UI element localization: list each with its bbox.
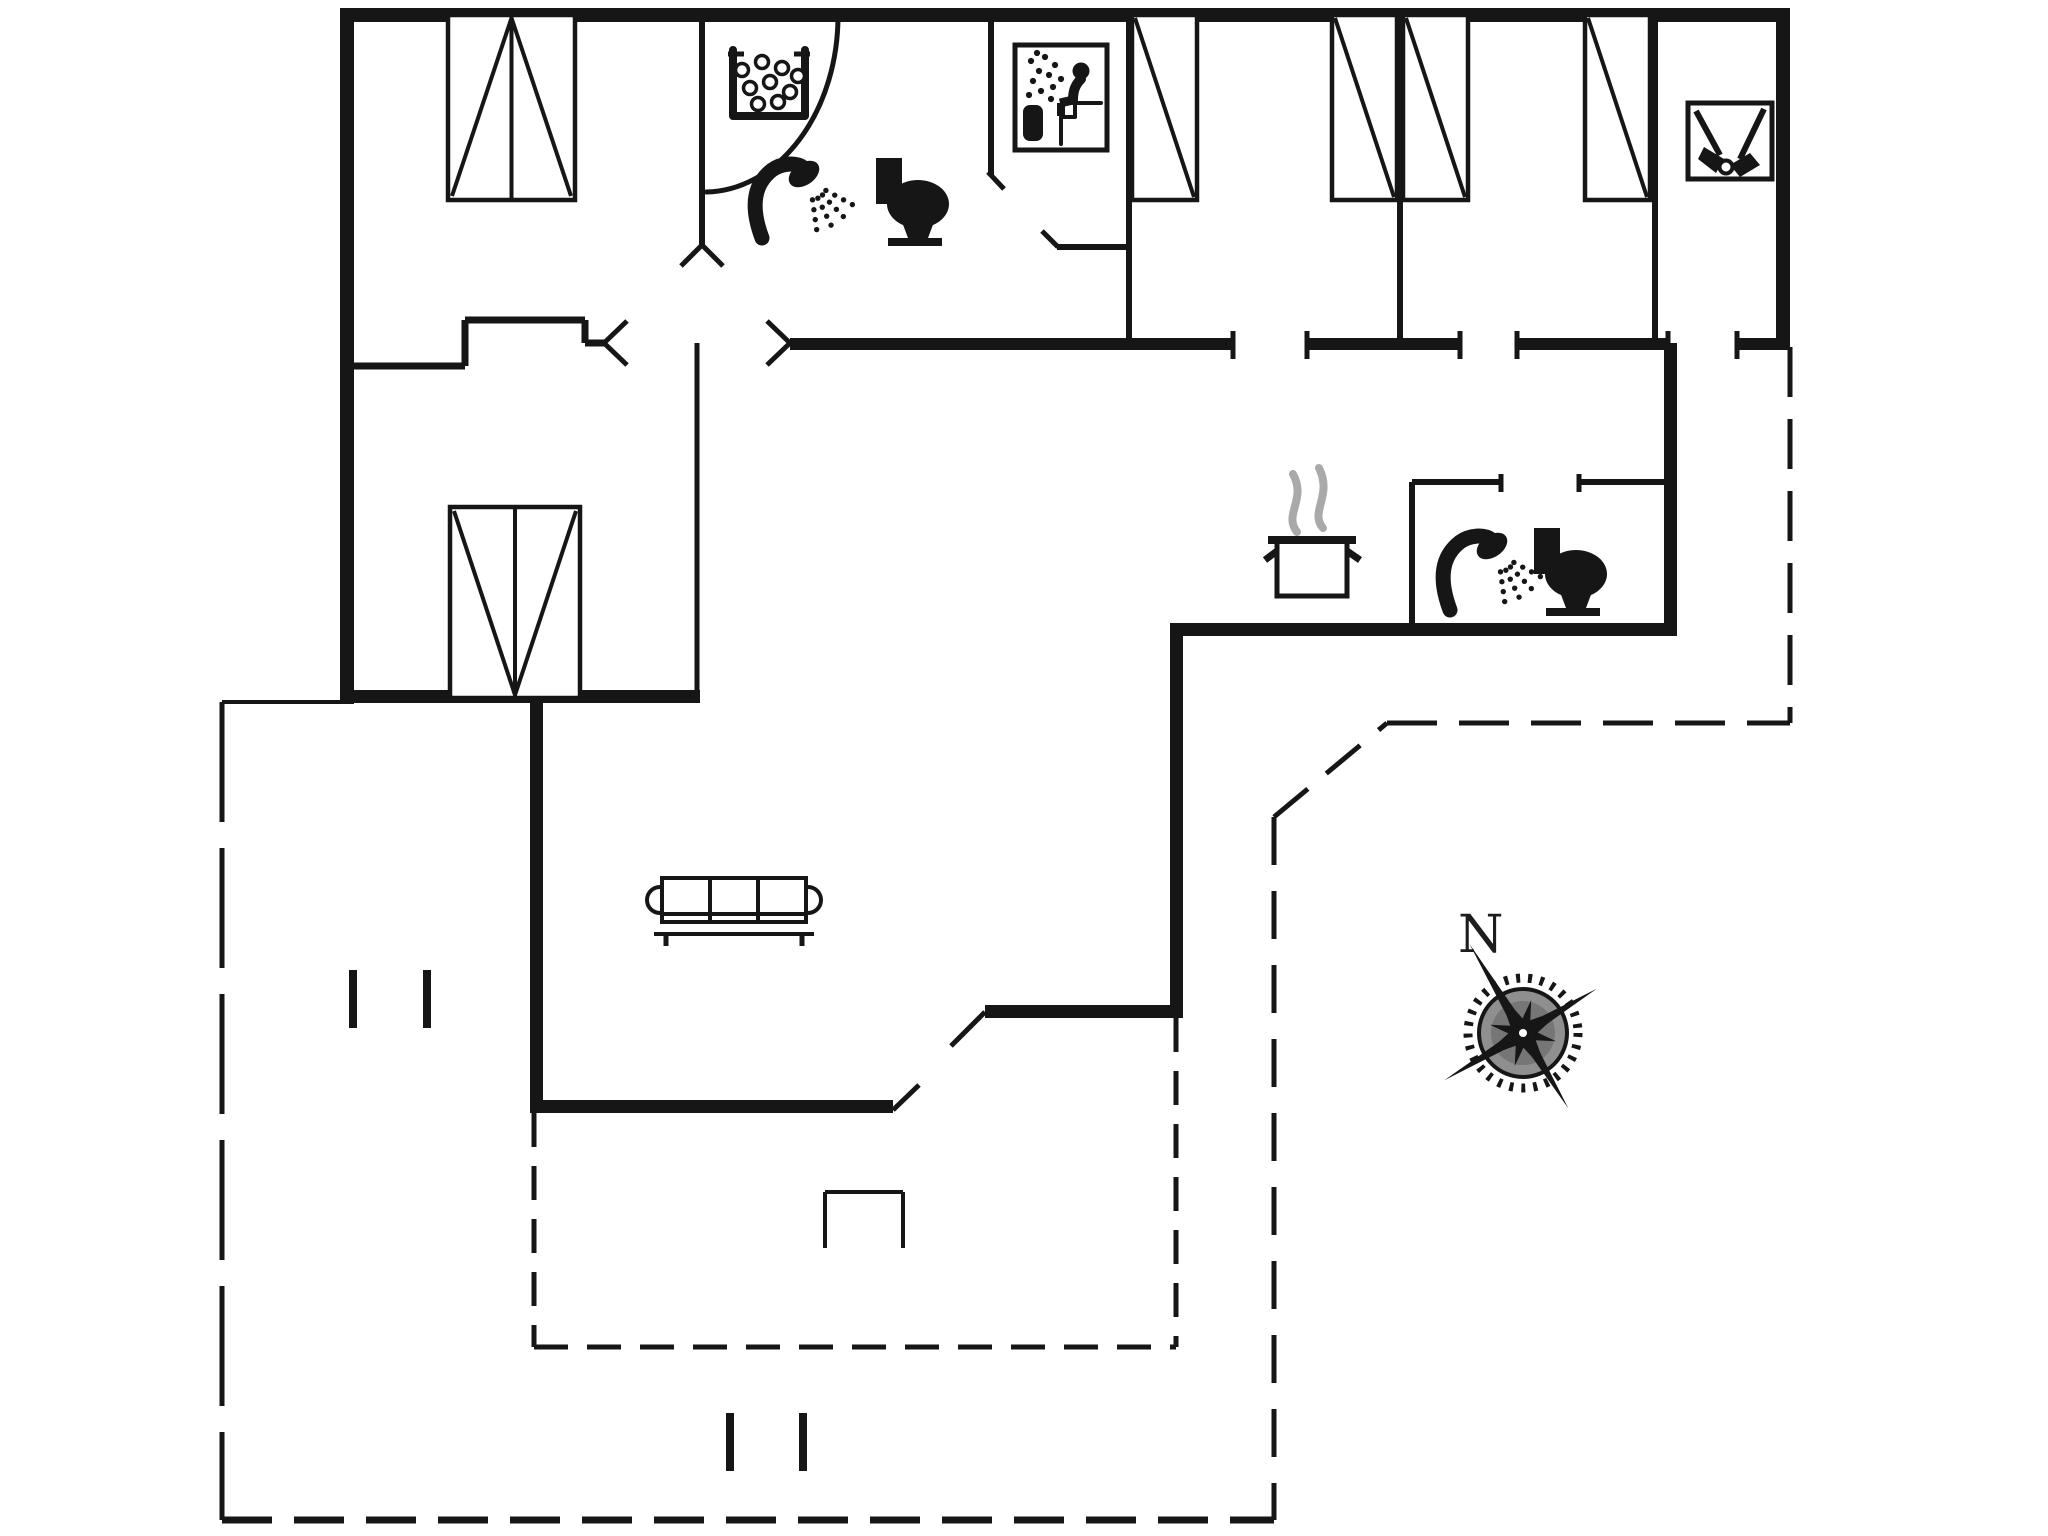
door-jamb-mark <box>767 321 790 343</box>
toilet-icon-pedestal <box>902 222 934 238</box>
shower-icon-spray-dot <box>1498 569 1503 574</box>
living-room-south-wall <box>530 1100 893 1113</box>
living-room-west-wall <box>530 701 543 1113</box>
bathroom2-east-wall <box>1664 343 1677 636</box>
sauna-icon-bucket <box>1023 105 1043 141</box>
whirlpool-bath-icon-bubble <box>792 70 805 83</box>
whirlpool-bath-icon-bubble <box>776 62 789 75</box>
terrace-door-leaf <box>951 1012 985 1046</box>
whirlpool-bath-icon-bubble <box>772 96 785 109</box>
shower-icon-spray-dot <box>1512 585 1517 590</box>
sauna-icon-steam-dot <box>1050 84 1056 90</box>
shower-icon-spray-dot <box>1529 586 1534 591</box>
shower-icon-spray-dot <box>1499 579 1504 584</box>
shower-icon-spray-dot <box>1538 574 1543 579</box>
sauna-icon-steam-dot <box>1034 50 1040 56</box>
sauna-icon-steam-dot <box>1026 92 1032 98</box>
sauna-icon-steam-dot <box>1046 72 1052 78</box>
shower-icon-spray-dot <box>1529 569 1534 574</box>
shower-icon-spray-dot <box>828 222 833 227</box>
kitchen-bathroom-south-wall <box>1170 623 1677 636</box>
sauna-icon-steam-dot <box>1052 62 1058 68</box>
door-jamb-mark <box>604 343 627 365</box>
sauna-icon-steam-dot <box>1030 78 1036 84</box>
sauna-icon-steam-dot <box>1048 96 1054 102</box>
door-jamb-mark <box>681 245 702 266</box>
shower-icon-spray-dot <box>820 192 825 197</box>
whirlpool-bath-icon-bubble <box>744 82 757 95</box>
corridor-wall-segment <box>1517 338 1668 350</box>
shower-icon-spray-dot <box>1503 567 1508 572</box>
toilet-icon-pedestal <box>1560 592 1592 608</box>
shower-icon-spray-dot <box>827 199 832 204</box>
compass-hub <box>1519 1029 1527 1037</box>
shower-icon-spray-dot <box>1501 589 1506 594</box>
shower-icon-spray-dot <box>1516 594 1521 599</box>
cooking-pot-icon-steam <box>1292 474 1297 532</box>
whirlpool-bath-icon-bubble <box>752 98 765 111</box>
whirlpool-bath-icon-bubble <box>784 86 797 99</box>
shower-icon-spray-dot <box>1502 599 1507 604</box>
shower-icon-spray-dot <box>841 214 846 219</box>
shower-icon-spray-dot <box>824 213 829 218</box>
shower-icon-spray-dot <box>815 195 820 200</box>
shower-icon-spray-dot <box>850 202 855 207</box>
cooking-pot-icon-body <box>1277 540 1347 596</box>
compass-north-label: N <box>1458 905 1504 965</box>
sauna-door-mark <box>988 172 1004 189</box>
exterior-wall-west <box>340 8 354 704</box>
shower-icon-spray-dot <box>1508 576 1513 581</box>
shower-icon-spray-dot <box>811 207 816 212</box>
cleaning-equipment-icon-vacuum-wheel <box>1720 161 1733 174</box>
door-jamb-mark <box>767 343 790 365</box>
kitchen-east-wall <box>1170 628 1183 1018</box>
shower-icon-spray-dot <box>832 192 837 197</box>
toilet-icon-bowl <box>1545 550 1607 598</box>
sauna-icon-steam-dot <box>1042 54 1048 60</box>
corridor-wall-segment <box>790 338 1233 350</box>
cooking-pot-icon-steam <box>1318 468 1323 528</box>
sauna-icon-steam-dot <box>1058 76 1064 82</box>
toilet-icon-base <box>1546 608 1600 616</box>
sauna-icon-steam-dot <box>1028 58 1034 64</box>
shower-icon-spray-dot <box>1522 579 1527 584</box>
toilet-icon-base <box>888 238 942 246</box>
corridor-wall-segment <box>1737 338 1790 350</box>
shower-icon-spray-dot <box>810 197 815 202</box>
terrace-door-jamb-mark <box>893 1085 919 1110</box>
sauna-icon-steam-dot <box>1036 68 1042 74</box>
sauna-icon-person-thigh <box>1060 100 1073 103</box>
floorplan-drawing <box>222 8 1790 1520</box>
shower-icon-spray-dot <box>814 227 819 232</box>
shower-icon-spray-dot <box>1508 564 1513 569</box>
whirlpool-bath-icon-bubble <box>764 76 777 89</box>
floorplan-svg: N <box>0 0 2048 1536</box>
corridor-wall-segment <box>1307 338 1460 350</box>
whirlpool-bath-icon-bubble <box>736 64 749 77</box>
door-jamb-mark <box>702 245 723 266</box>
kitchen-south-wall <box>985 1005 1183 1018</box>
sauna-door-mark <box>1042 231 1058 247</box>
sauna-icon-steam-dot <box>1038 88 1044 94</box>
floorplan-canvas: N <box>0 0 2048 1536</box>
shower-icon-spray-dot <box>841 197 846 202</box>
door-jamb-mark <box>604 321 627 343</box>
whirlpool-bath-icon-bubble <box>756 56 769 69</box>
shower-icon-spray-dot <box>820 204 825 209</box>
shower-icon-spray-dot <box>813 217 818 222</box>
shower-icon-spray-dot <box>823 188 828 193</box>
shower-icon-spray-dot <box>1511 560 1516 565</box>
shower-icon-spray-dot <box>1520 564 1525 569</box>
toilet-icon-bowl <box>887 180 949 228</box>
boundary-dashed-diagonal <box>1274 723 1387 817</box>
shower-icon-spray-dot <box>834 207 839 212</box>
shower-icon-spray-dot <box>1515 571 1520 576</box>
exterior-wall-east <box>1776 8 1790 350</box>
